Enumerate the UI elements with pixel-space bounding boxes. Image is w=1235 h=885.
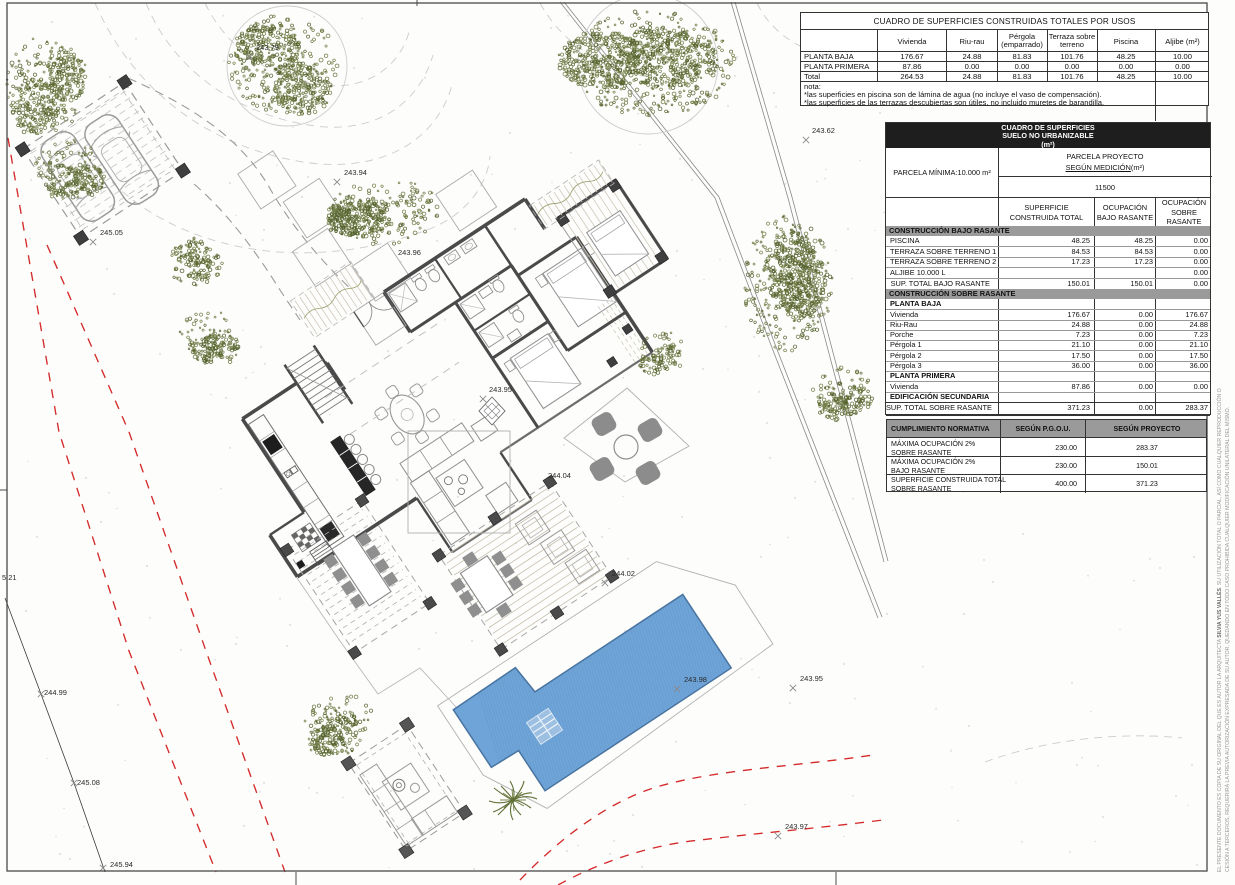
svg-text:243.62: 243.62 <box>812 126 835 135</box>
svg-text:243.94: 243.94 <box>344 168 367 177</box>
svg-text:244.99: 244.99 <box>44 688 67 697</box>
svg-text:5.21: 5.21 <box>2 573 17 582</box>
svg-text:243.97: 243.97 <box>785 822 808 831</box>
svg-text:245.08: 245.08 <box>77 778 100 787</box>
svg-text:244.04: 244.04 <box>548 471 571 480</box>
svg-text:244.02: 244.02 <box>612 569 635 578</box>
svg-text:243.95: 243.95 <box>800 674 823 683</box>
svg-text:245.94: 245.94 <box>110 860 133 869</box>
svg-text:243.96: 243.96 <box>398 248 421 257</box>
svg-text:243.79: 243.79 <box>256 43 279 52</box>
svg-text:243.95: 243.95 <box>489 385 512 394</box>
svg-text:243.98: 243.98 <box>684 675 707 684</box>
svg-text:245.05: 245.05 <box>100 228 123 237</box>
